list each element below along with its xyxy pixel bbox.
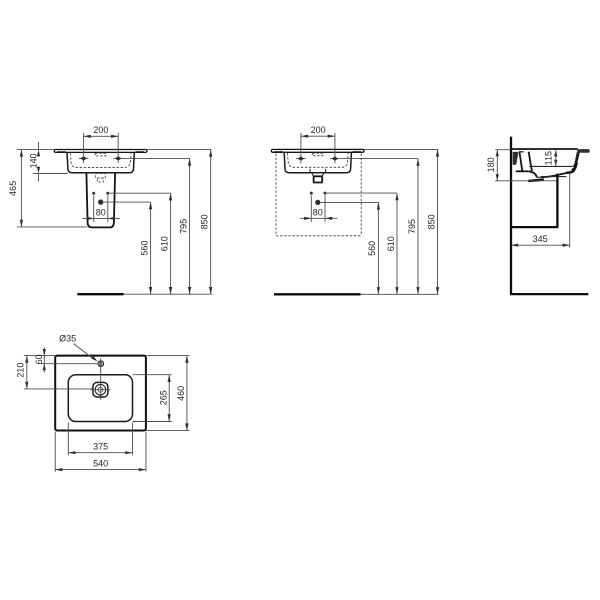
svg-text:850: 850 (200, 214, 210, 229)
svg-text:460: 460 (176, 386, 186, 401)
svg-text:610: 610 (386, 236, 396, 251)
svg-text:80: 80 (313, 207, 323, 217)
svg-text:140: 140 (28, 153, 38, 168)
svg-text:265: 265 (158, 390, 168, 405)
svg-text:Ø35: Ø35 (59, 334, 76, 344)
svg-text:795: 795 (178, 219, 188, 234)
svg-text:850: 850 (426, 214, 436, 229)
svg-text:610: 610 (159, 236, 169, 251)
svg-text:180: 180 (486, 157, 496, 172)
svg-text:465: 465 (8, 181, 18, 196)
svg-text:200: 200 (311, 125, 326, 135)
svg-text:375: 375 (93, 442, 108, 452)
svg-text:210: 210 (15, 363, 25, 378)
svg-text:60: 60 (34, 354, 44, 364)
svg-text:795: 795 (407, 219, 417, 234)
svg-text:200: 200 (93, 125, 108, 135)
svg-text:345: 345 (533, 234, 548, 244)
svg-text:540: 540 (93, 459, 108, 469)
svg-text:560: 560 (367, 241, 377, 256)
svg-text:115: 115 (544, 151, 554, 165)
svg-text:80: 80 (96, 207, 106, 217)
svg-text:560: 560 (139, 241, 149, 256)
